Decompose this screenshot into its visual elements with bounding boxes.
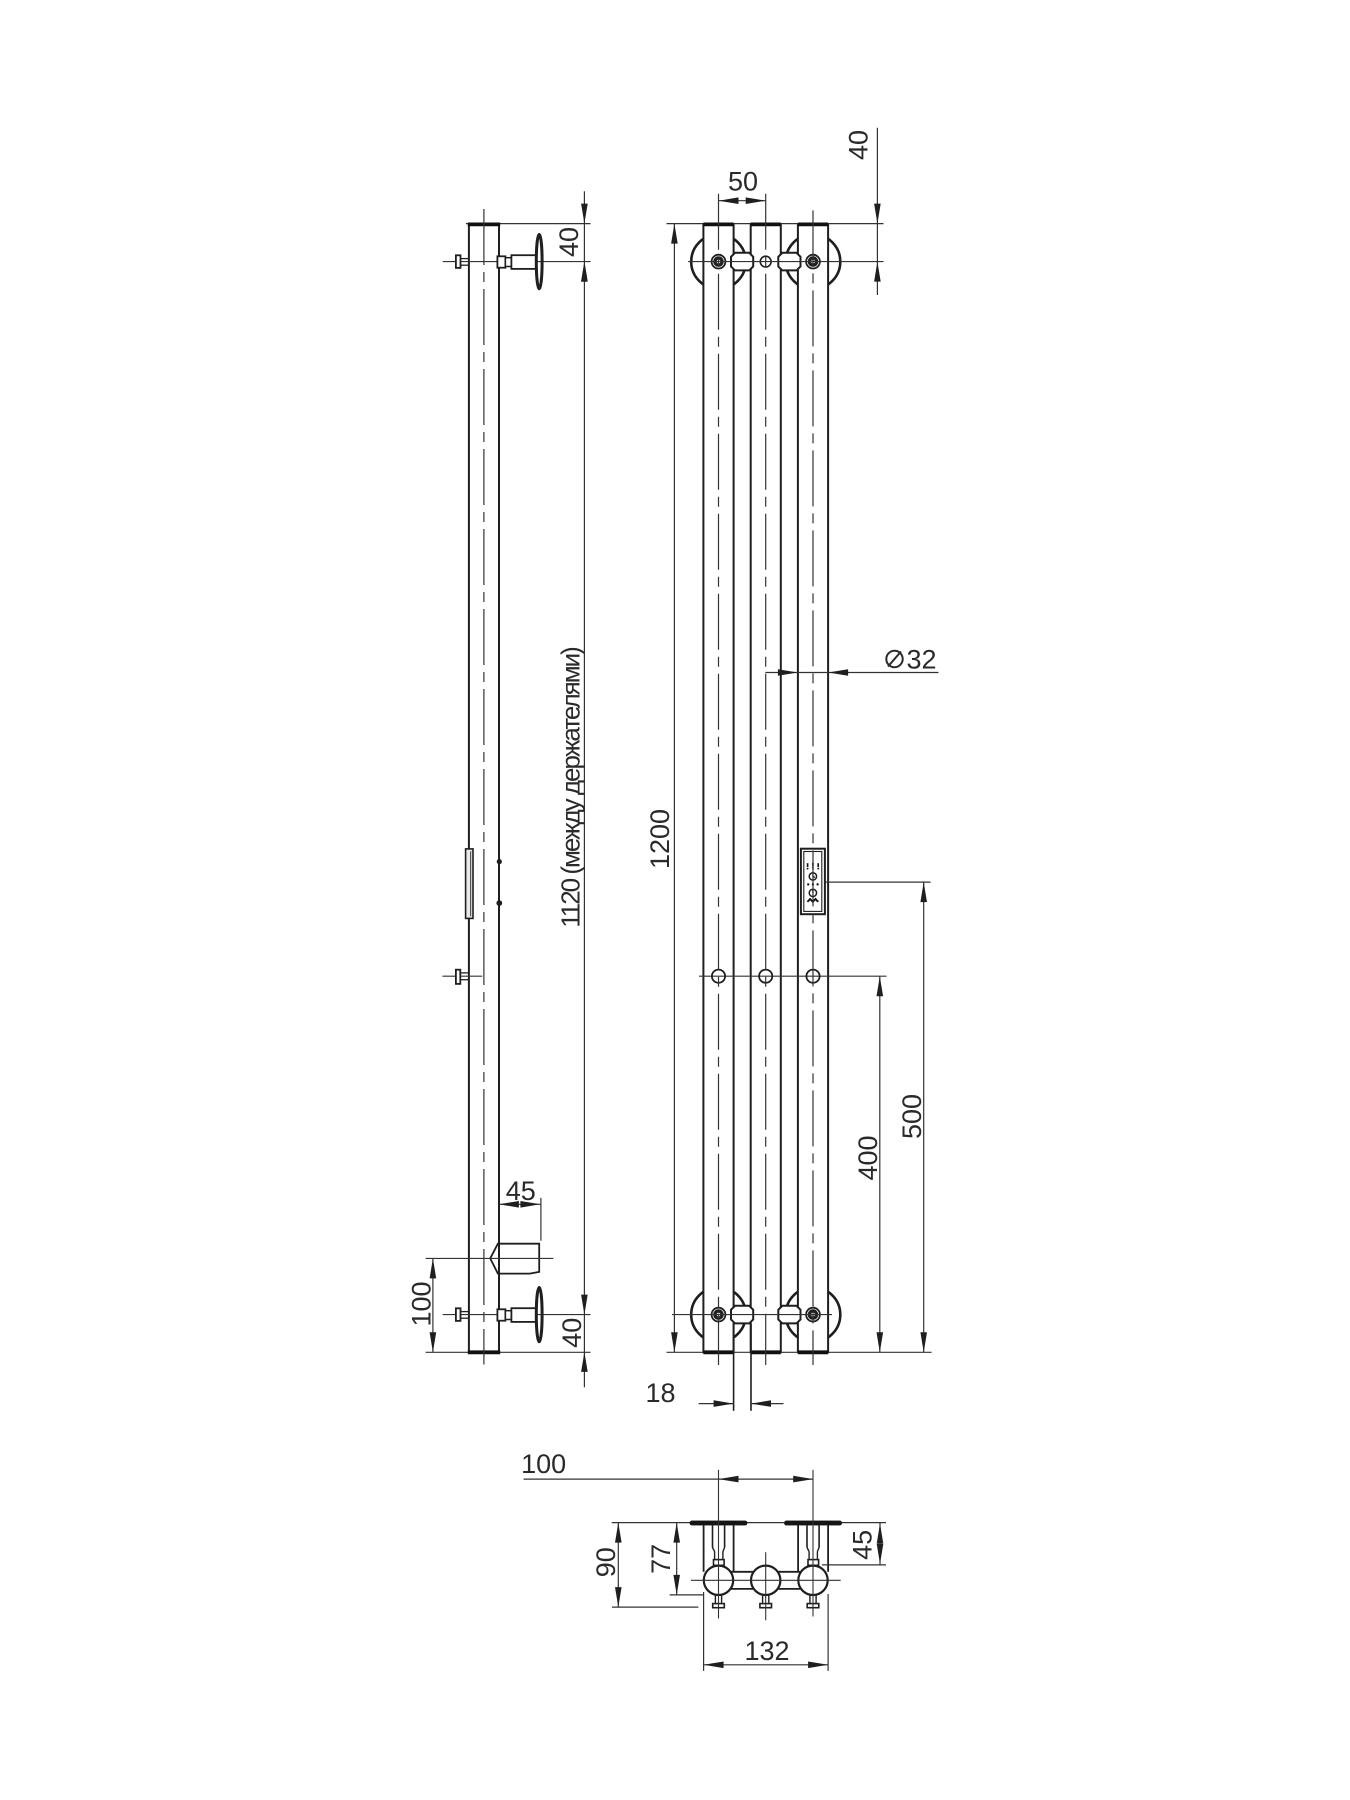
svg-text:77: 77 [646,1544,676,1574]
svg-text:500: 500 [897,1094,927,1139]
svg-text:100: 100 [407,1281,437,1326]
svg-text:50: 50 [728,167,758,197]
svg-text:400: 400 [853,1135,883,1180]
svg-text:40: 40 [554,227,584,257]
svg-text:90: 90 [591,1547,621,1577]
svg-text:45: 45 [848,1530,878,1560]
svg-text:32: 32 [906,645,936,675]
svg-text:1200: 1200 [645,809,675,869]
svg-text:18: 18 [645,1378,675,1408]
svg-text:1120 (между держателями): 1120 (между держателями) [556,647,586,928]
svg-text:100: 100 [521,1449,566,1479]
svg-text:40: 40 [844,130,874,160]
svg-text:40: 40 [557,1318,587,1348]
svg-text:132: 132 [744,1636,789,1666]
svg-text:45: 45 [506,1176,536,1206]
